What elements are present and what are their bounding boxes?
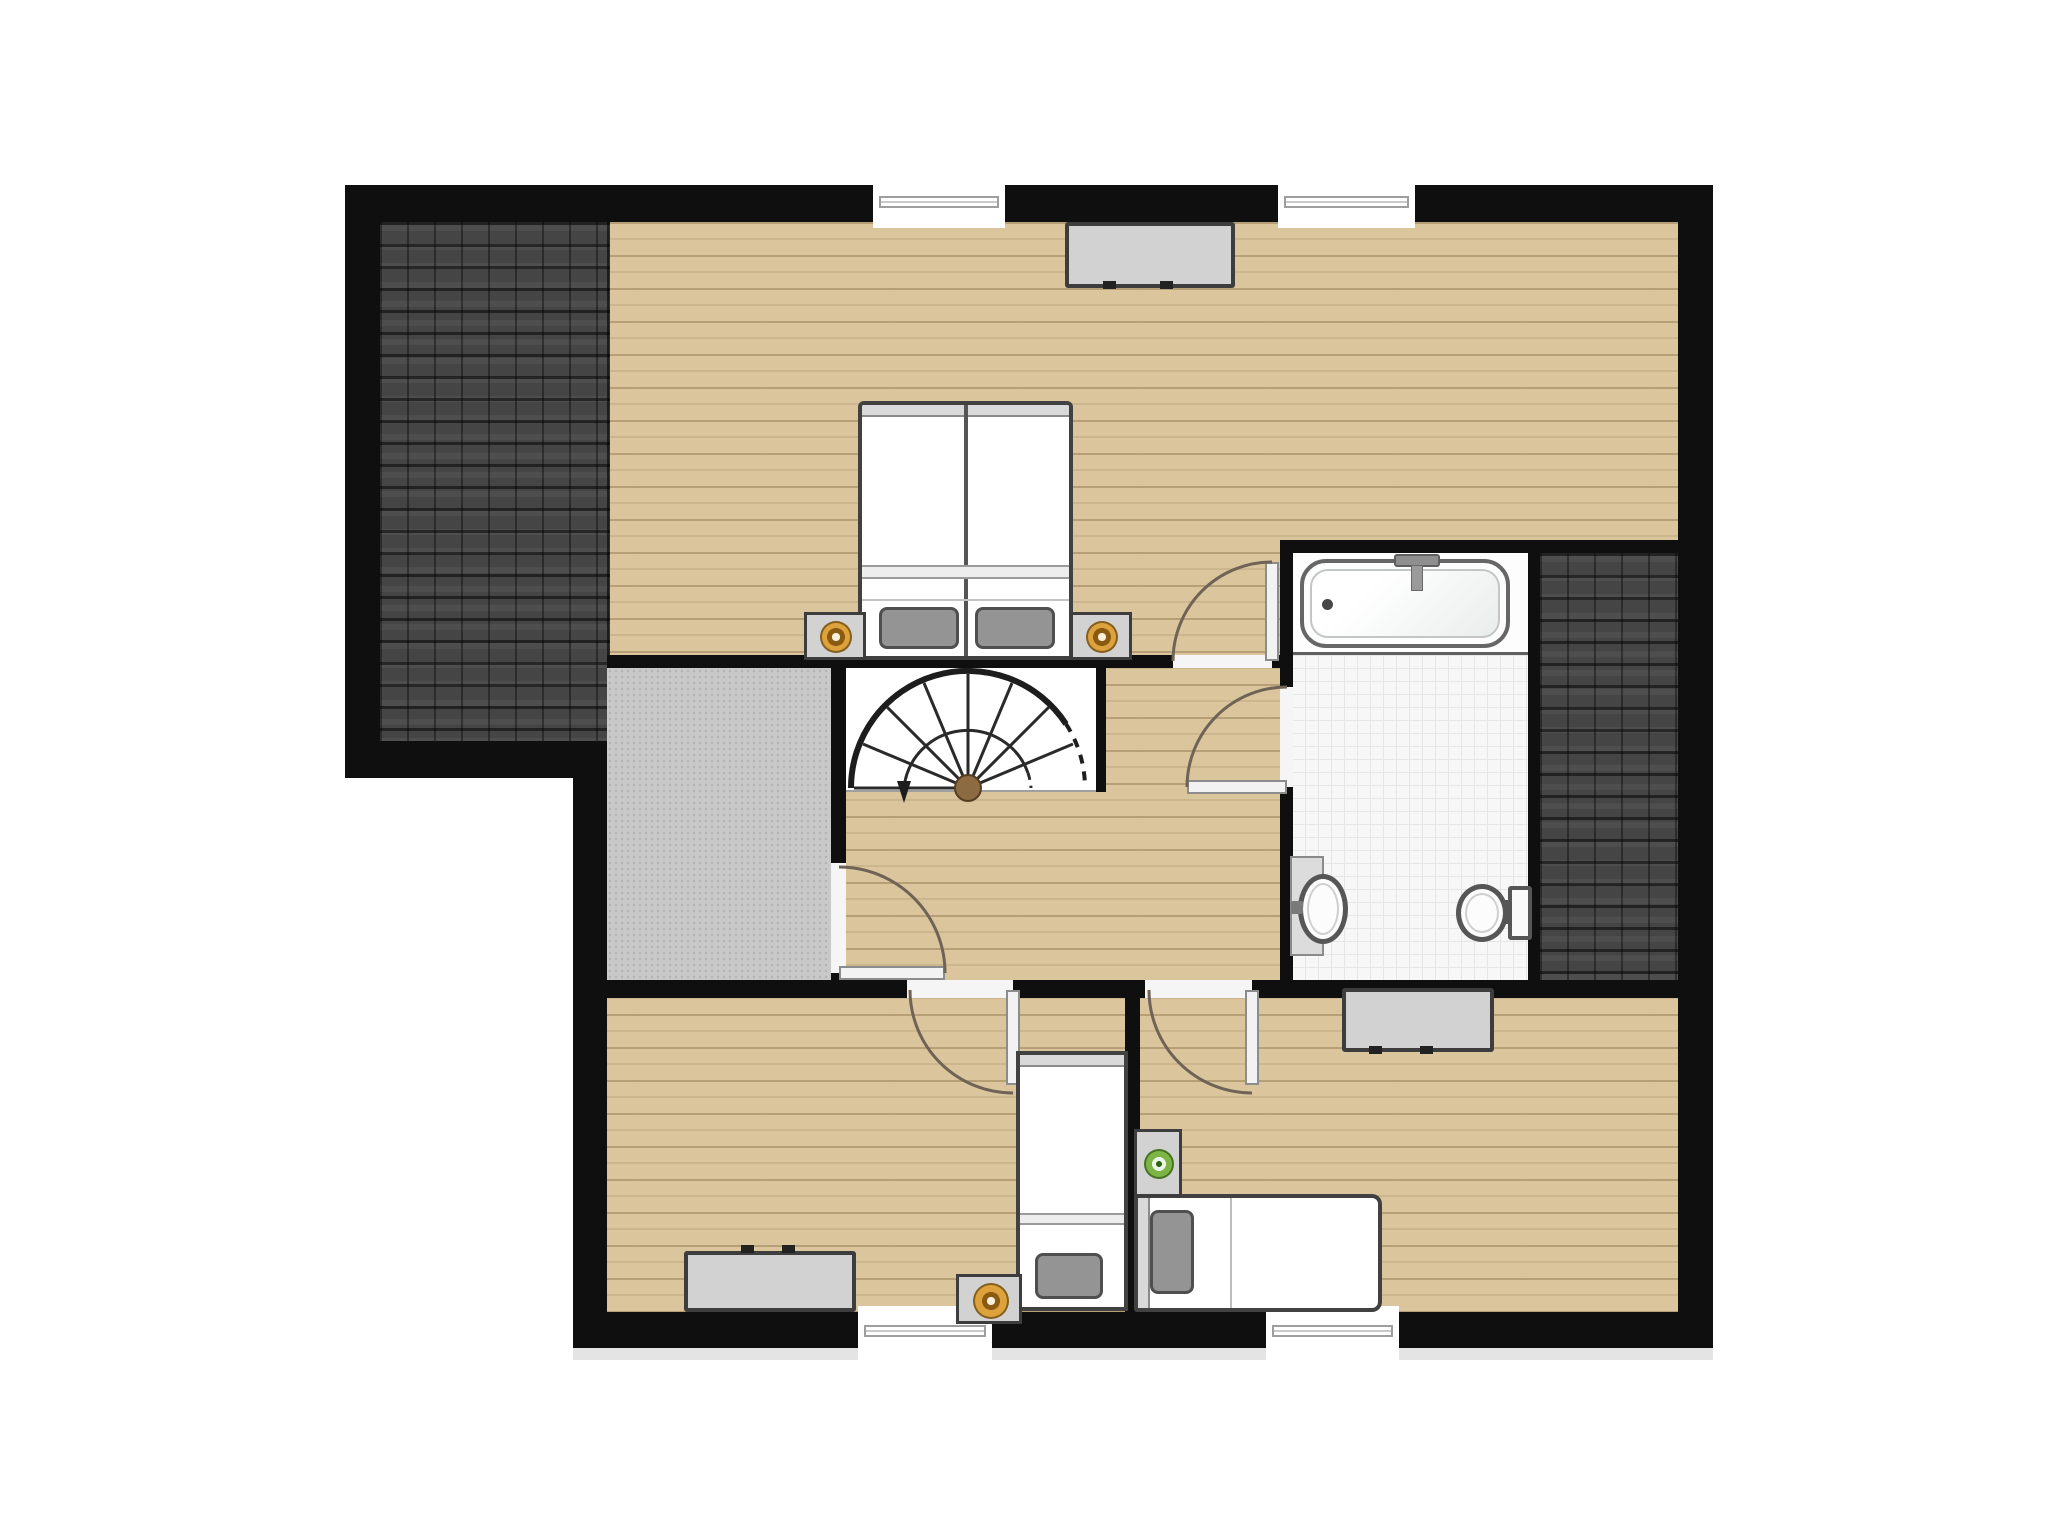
dresser-knob [1160, 281, 1173, 289]
lamp-orange-icon [1086, 621, 1118, 653]
pillow [1150, 1210, 1194, 1294]
duvet-fold [1020, 1213, 1124, 1225]
bathroom-door [1187, 780, 1287, 794]
wall-left-lower [573, 778, 607, 1348]
roof-right [1540, 553, 1678, 980]
pillow [1035, 1253, 1103, 1299]
dresser-master [1065, 222, 1235, 288]
wall-step [345, 741, 607, 778]
bedroom-right-door-threshold [1145, 980, 1252, 998]
window-glass [864, 1325, 986, 1337]
duvet-line [862, 599, 1069, 601]
dresser-bedroom-left [684, 1251, 856, 1312]
lamp-green-icon [1144, 1149, 1174, 1179]
wall-bath-north [1280, 540, 1540, 553]
bedroom-right-door [1245, 990, 1259, 1085]
stairwell [846, 668, 1096, 792]
single-bed-left [1016, 1051, 1128, 1311]
dresser-knob [1103, 281, 1116, 289]
dresser-knob [741, 1245, 754, 1253]
bed-center-divider [964, 405, 968, 656]
window-bottom-right [1266, 1306, 1399, 1360]
bed-headboard [1138, 1198, 1150, 1308]
storage-room-floor [607, 668, 831, 980]
bathtub-basin [1310, 569, 1500, 638]
washbasin-bowl [1307, 883, 1339, 935]
window-glass [879, 196, 999, 208]
dresser-knob [1369, 1046, 1382, 1054]
wall-storage-east-a [831, 668, 846, 863]
bathtub [1300, 559, 1510, 648]
duvet-fold [862, 565, 1069, 579]
wall-stair-east [1096, 668, 1106, 792]
storage-door-threshold [831, 863, 846, 973]
pillow [975, 607, 1055, 649]
floor-plan [0, 0, 2048, 1536]
bathtub-drain-icon [1322, 599, 1333, 610]
wall-right [1678, 185, 1713, 1348]
dresser-knob [1420, 1046, 1433, 1054]
wall-bottom [573, 1312, 1713, 1348]
lamp-orange-icon [820, 621, 852, 653]
wall-left-upper [345, 185, 380, 778]
bathroom-door-threshold [1280, 687, 1293, 787]
storage-room-door [839, 966, 945, 980]
double-bed [858, 401, 1073, 660]
window-top-right [1278, 179, 1415, 228]
nightstand [804, 612, 866, 660]
dresser-knob [782, 1245, 795, 1253]
washbasin-faucet-icon [1291, 901, 1303, 914]
nightstand-green [1134, 1129, 1182, 1197]
duvet-line [1230, 1198, 1232, 1308]
toilet-bowl [1465, 893, 1499, 933]
wall-bath-west-a [1280, 540, 1293, 687]
dresser-bedroom-right [1342, 988, 1494, 1052]
wall-top [345, 185, 1713, 222]
window-glass [1272, 1325, 1393, 1337]
lamp-orange-icon [973, 1283, 1009, 1319]
nightstand [956, 1274, 1022, 1324]
nightstand [1070, 612, 1132, 660]
ground-shadow [573, 1348, 1713, 1360]
window-glass [1284, 196, 1409, 208]
bedroom-left-door-threshold [907, 980, 1013, 998]
bed-footboard [1020, 1055, 1124, 1067]
washbasin [1298, 874, 1348, 944]
single-bed-right [1134, 1194, 1382, 1312]
window-top-left [873, 179, 1005, 228]
wall-south-b [1013, 980, 1145, 998]
wall-roof-north [1540, 540, 1678, 553]
pillow [879, 607, 959, 649]
roof-left [380, 222, 610, 741]
bathtub-faucet-icon [1411, 565, 1423, 591]
toilet [1456, 884, 1508, 942]
master-door-threshold [1173, 655, 1272, 668]
master-bedroom-door [1265, 562, 1279, 661]
wall-south-a [607, 980, 907, 998]
toilet-tank [1508, 886, 1532, 940]
